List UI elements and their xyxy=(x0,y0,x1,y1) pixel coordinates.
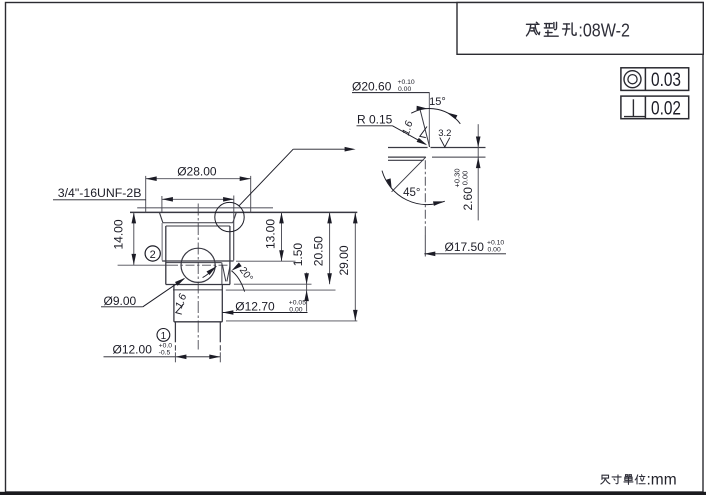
svg-text:Ø12.70: Ø12.70 xyxy=(235,299,275,313)
svg-text:0.00: 0.00 xyxy=(461,171,470,186)
svg-text:3.2: 3.2 xyxy=(438,128,451,139)
svg-text:29.00: 29.00 xyxy=(337,245,351,275)
svg-text:+0.10: +0.10 xyxy=(487,240,504,247)
svg-text:2: 2 xyxy=(150,249,156,261)
svg-text:1.50: 1.50 xyxy=(291,243,305,267)
svg-text:0.00: 0.00 xyxy=(289,306,302,313)
svg-text:2.60: 2.60 xyxy=(461,187,475,211)
svg-text:Ø12.00: Ø12.00 xyxy=(113,343,153,357)
svg-text:Ø17.50: Ø17.50 xyxy=(445,240,485,254)
svg-text:3/4"-16UNF-2B: 3/4"-16UNF-2B xyxy=(58,186,142,200)
svg-text:+0.0: +0.0 xyxy=(159,343,173,350)
svg-text:Ø20.60: Ø20.60 xyxy=(352,79,392,93)
svg-text:15°: 15° xyxy=(429,96,446,108)
svg-text:+0.10: +0.10 xyxy=(398,79,415,86)
svg-text:Ø9.00: Ø9.00 xyxy=(104,294,137,308)
svg-text:0.02: 0.02 xyxy=(651,99,681,120)
svg-text:0.00: 0.00 xyxy=(488,247,501,254)
svg-text:13.00: 13.00 xyxy=(264,219,278,249)
svg-text::mm: :mm xyxy=(647,472,677,489)
svg-text:20.50: 20.50 xyxy=(312,236,326,266)
svg-text:45°: 45° xyxy=(403,187,420,199)
svg-text:0.03: 0.03 xyxy=(651,70,681,91)
svg-text:-0.5: -0.5 xyxy=(159,350,171,357)
svg-text::08W-2: :08W-2 xyxy=(578,20,630,41)
svg-text:0.00: 0.00 xyxy=(398,86,411,93)
svg-text:R 0.15: R 0.15 xyxy=(357,113,393,127)
svg-text:14.00: 14.00 xyxy=(111,219,125,249)
svg-text:Ø28.00: Ø28.00 xyxy=(177,165,217,179)
svg-text:1: 1 xyxy=(161,331,167,342)
